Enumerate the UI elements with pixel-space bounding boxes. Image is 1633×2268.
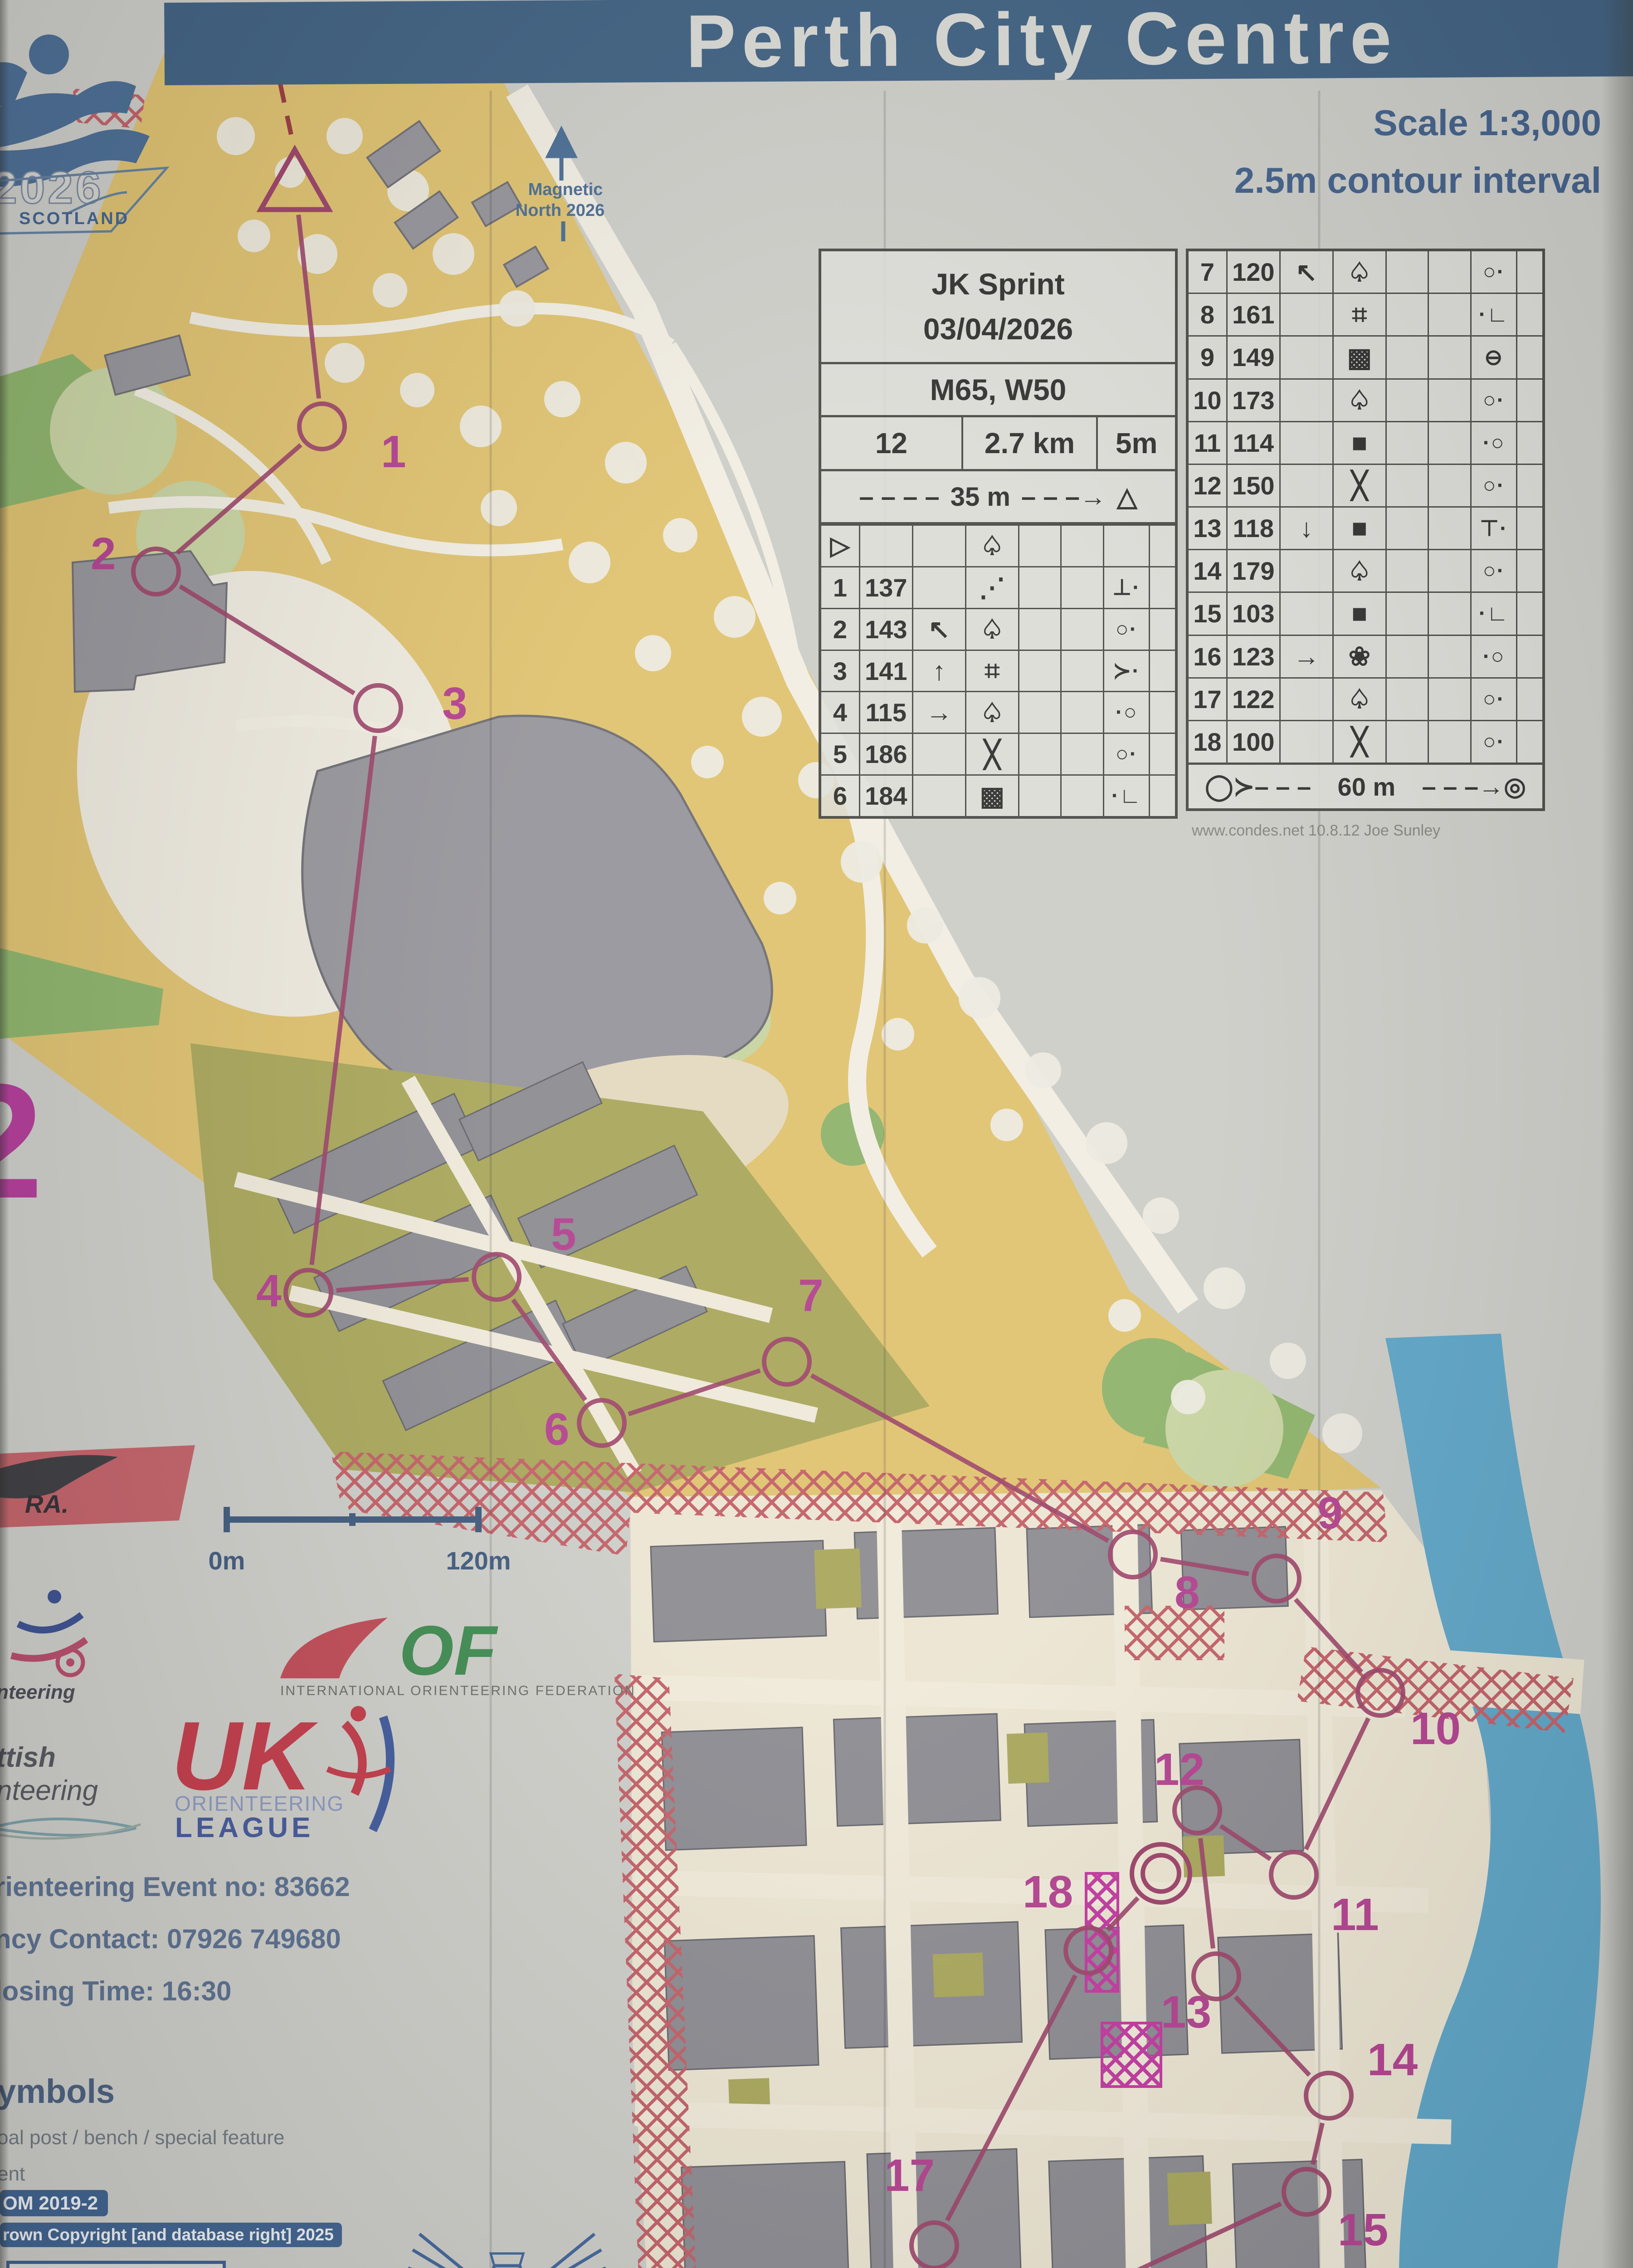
crest-left-wing: [406, 2234, 481, 2268]
iof-letters: OF: [399, 1611, 499, 1690]
jk-year: 2026: [0, 162, 103, 213]
detail-cell: [1019, 691, 1062, 733]
tree-icon: ♤: [1334, 549, 1387, 591]
thicket-icon: ▩: [1334, 335, 1387, 378]
detail-cell: [1429, 635, 1472, 677]
detail-cell: [1150, 650, 1175, 691]
detail-cell: [1429, 421, 1472, 464]
tree-icon: ♤: [966, 691, 1019, 733]
direction-icon: [913, 524, 966, 566]
control-number-label-9: 9: [1317, 1488, 1343, 1539]
crossing-icon: ╳: [966, 733, 1019, 774]
title-banner: Perth City Centre: [164, 0, 1633, 85]
direction-icon: →: [913, 691, 966, 733]
detail-cell: [1150, 566, 1175, 608]
control-code: 103: [1228, 591, 1281, 634]
control-number-label-8: 8: [1175, 1567, 1200, 1618]
detail-cell: [1062, 774, 1104, 816]
control-number-label-10: 10: [1410, 1703, 1461, 1754]
detail-cell: [1150, 774, 1175, 816]
control-number: 12: [1189, 464, 1228, 506]
control-row-13: 13118↓■⊤·: [1189, 506, 1542, 549]
building-icon: ■: [1334, 591, 1387, 634]
detail-cell: [1019, 733, 1062, 774]
control-number: 4: [821, 691, 860, 733]
control-number-label-5: 5: [551, 1209, 576, 1260]
detail-cell: [1429, 677, 1472, 720]
detail-cell: [1387, 549, 1429, 591]
special-item-icon: ❀: [1334, 635, 1387, 677]
location-icon: ·∟: [1472, 591, 1517, 634]
control-code: 186: [860, 733, 913, 774]
detail-cell: [1387, 335, 1429, 378]
location-icon: ○·: [1472, 464, 1517, 506]
detail-cell: [1429, 506, 1472, 549]
detail-cell: [1387, 506, 1429, 549]
detail-cell: [1517, 378, 1542, 421]
thicket-icon: ▩: [966, 774, 1019, 816]
control-number: 2: [821, 608, 860, 650]
control-number: ▷: [821, 524, 860, 566]
event-number-line: rienteering Event no: 83662: [0, 1871, 350, 1902]
detail-cell: [1429, 378, 1472, 421]
scottish-orienteering-logo: ttish nteering: [0, 1742, 141, 1838]
detail-cell: [1429, 464, 1472, 506]
card-course-length: 2.7 km: [963, 417, 1098, 469]
detail-cell: [1387, 421, 1429, 464]
detail-cell: [1150, 608, 1175, 650]
control-code: 184: [860, 774, 913, 816]
control-code: 114: [1228, 421, 1281, 464]
detail-cell: [1019, 566, 1062, 608]
detail-cell: [1150, 733, 1175, 774]
building-icon: ■: [1334, 506, 1387, 549]
control-code: 179: [1228, 549, 1281, 591]
location-icon: ·○: [1472, 635, 1517, 677]
control-code: 122: [1228, 677, 1281, 720]
card-course-climb: 5m: [1098, 417, 1175, 469]
control-number: 11: [1189, 421, 1228, 464]
north-label-2: North 2026: [516, 201, 604, 220]
control-number-label-17: 17: [884, 2150, 935, 2201]
council-crest: [406, 2234, 608, 2268]
control-number-label-12: 12: [1154, 1744, 1204, 1795]
jk-country: SCOTLAND: [19, 209, 129, 228]
detail-cell: [1387, 293, 1429, 335]
location-icon: ○·: [1104, 733, 1150, 774]
detail-cell: [1429, 335, 1472, 378]
crossing-icon: ╳: [1334, 464, 1387, 506]
detail-cell: [1387, 250, 1429, 293]
control-row-1: 1137⋰⊥·: [821, 566, 1175, 608]
card-stats: 12 2.7 km 5m: [821, 417, 1175, 471]
location-icon: ≻·: [1104, 650, 1150, 691]
control-code: [860, 524, 913, 566]
fence-icon: ⌗: [966, 650, 1019, 691]
direction-icon: [1281, 720, 1334, 763]
licence-info-lines: 118237enteersGovernment Licence v3.0.rap…: [10, 2264, 223, 2268]
detail-cell: [1150, 691, 1175, 733]
control-row-start: ▷♤: [821, 524, 1175, 566]
direction-icon: [1281, 677, 1334, 720]
shoe-logo: RA.: [0, 1445, 195, 1528]
so-line2: nteering: [0, 1775, 98, 1806]
control-number: 7: [1189, 250, 1228, 293]
control-row-5: 5186╳○·: [821, 733, 1175, 774]
detail-cell: [1517, 549, 1542, 591]
control-code: 161: [1228, 293, 1281, 335]
control-number-label-13: 13: [1161, 1987, 1211, 2038]
control-number: 14: [1189, 549, 1228, 591]
ukol-logo: UK ORIENTEERING LEAGUE: [171, 1701, 390, 1843]
control-number-label-2: 2: [91, 528, 116, 579]
detail-cell: [1517, 293, 1542, 335]
location-icon: ·∟: [1472, 293, 1517, 335]
location-icon: ○·: [1104, 608, 1150, 650]
control-number: 15: [1189, 591, 1228, 634]
detail-cell: [1019, 524, 1062, 566]
control-rows-right: 7120↖♤○·8161⌗·∟9149▩⊖10173♤○·11114■·○121…: [1189, 250, 1542, 763]
location-icon: ⊖: [1472, 335, 1517, 378]
direction-icon: [1281, 591, 1334, 634]
control-code: 137: [860, 566, 913, 608]
iof-tagline: INTERNATIONAL ORIENTEERING FEDERATION: [280, 1683, 636, 1698]
control-row-4: 4115→♤·○: [821, 691, 1175, 733]
control-row-12: 12150╳○·: [1189, 464, 1542, 506]
direction-icon: [913, 733, 966, 774]
control-row-8: 8161⌗·∟: [1189, 293, 1542, 335]
photo-edge-right: [1601, 0, 1633, 2268]
control-number: 13: [1189, 506, 1228, 549]
control-code: 118: [1228, 506, 1281, 549]
detail-cell: [1387, 591, 1429, 634]
detail-cell: [1517, 591, 1542, 634]
direction-icon: ↖: [913, 608, 966, 650]
detail-cell: [1019, 650, 1062, 691]
control-row-18: 18100╳○·: [1189, 720, 1542, 763]
control-number: 16: [1189, 635, 1228, 677]
direction-icon: [1281, 293, 1334, 335]
direction-icon: [1281, 464, 1334, 506]
card-finish-distance: ◯≻– – – 60 m – – –→◎: [1189, 763, 1542, 808]
location-icon: ·○: [1104, 691, 1150, 733]
map-sheet: 123456789101112131415161718 Magnetic Nor…: [0, 0, 1633, 2268]
steps-icon: ⋰: [966, 566, 1019, 608]
shoe-logo-text: RA.: [25, 1490, 68, 1518]
direction-icon: [913, 774, 966, 816]
detail-cell: [1387, 378, 1429, 421]
control-card-right: 7120↖♤○·8161⌗·∟9149▩⊖10173♤○·11114■·○121…: [1186, 249, 1545, 811]
map-title: Perth City Centre: [164, 0, 1633, 86]
emergency-contact-line: ncy Contact: 07926 749680: [0, 1923, 341, 1955]
detail-cell: [1387, 677, 1429, 720]
ukol-line2: LEAGUE: [175, 1812, 314, 1843]
control-number: 9: [1189, 335, 1228, 378]
detail-cell: [1019, 774, 1062, 816]
detail-cell: [1517, 720, 1542, 763]
symbols-line-1: oal post / bench / special feature: [0, 2126, 285, 2149]
detail-cell: [1517, 677, 1542, 720]
control-code: 173: [1228, 378, 1281, 421]
detail-cell: [1062, 691, 1104, 733]
detail-cell: [1062, 733, 1104, 774]
location-icon: [1104, 524, 1150, 566]
licence-info-box: 118237enteersGovernment Licence v3.0.rap…: [6, 2261, 226, 2268]
control-number-label-18: 18: [1023, 1867, 1073, 1917]
card-classes: M65, W50: [821, 364, 1175, 417]
scale-bar-start: 0m: [209, 1546, 245, 1575]
tree-icon: ♤: [966, 608, 1019, 650]
control-row-7: 7120↖♤○·: [1189, 250, 1542, 293]
closing-time-line: losing Time: 16:30: [0, 1975, 231, 2007]
control-row-11: 11114■·○: [1189, 421, 1542, 464]
detail-cell: [1150, 524, 1175, 566]
condes-attribution: www.condes.net 10.8.12 Joe Sunley: [1192, 822, 1440, 840]
direction-icon: →: [1281, 635, 1334, 677]
direction-icon: [1281, 335, 1334, 378]
crest-right-wing: [533, 2234, 608, 2268]
control-row-16: 16123→❀·○: [1189, 635, 1542, 677]
location-icon: ⊤·: [1472, 506, 1517, 549]
detail-cell: [1387, 464, 1429, 506]
control-row-2: 2143↖♤○·: [821, 608, 1175, 650]
tree-icon: ♤: [1334, 677, 1387, 720]
control-number-label-11: 11: [1331, 1889, 1379, 1940]
direction-icon: [1281, 378, 1334, 421]
photo-edge-left: [0, 0, 9, 2268]
control-row-17: 17122♤○·: [1189, 677, 1542, 720]
north-label-1: Magnetic: [528, 180, 603, 199]
detail-cell: [1429, 293, 1472, 335]
detail-cell: [1062, 608, 1104, 650]
control-number-label-1: 1: [381, 426, 406, 477]
control-code: 120: [1228, 250, 1281, 293]
detail-cell: [1517, 506, 1542, 549]
control-code: 115: [860, 691, 913, 733]
location-icon: ○·: [1472, 720, 1517, 763]
detail-cell: [1429, 720, 1472, 763]
detail-cell: [1062, 650, 1104, 691]
bo-logo-text: nteering: [0, 1681, 75, 1703]
direction-icon: [913, 566, 966, 608]
detail-cell: [1019, 608, 1062, 650]
isom-badge: OM 2019-2: [0, 2190, 108, 2216]
control-row-10: 10173♤○·: [1189, 378, 1542, 421]
crossing-icon: ╳: [1334, 720, 1387, 763]
control-number: 6: [821, 774, 860, 816]
detail-cell: [1517, 335, 1542, 378]
direction-icon: ↓: [1281, 506, 1334, 549]
tree-icon: ♤: [1334, 250, 1387, 293]
building-icon: ■: [1334, 421, 1387, 464]
control-code: 123: [1228, 635, 1281, 677]
control-number-label-6: 6: [544, 1404, 570, 1455]
detail-cell: [1429, 591, 1472, 634]
control-number-label-14: 14: [1367, 2034, 1418, 2085]
control-row-14: 14179♤○·: [1189, 549, 1542, 591]
control-number: 3: [821, 650, 860, 691]
detail-cell: [1062, 566, 1104, 608]
control-code: 150: [1228, 464, 1281, 506]
control-code: 141: [860, 650, 913, 691]
location-icon: ⊥·: [1104, 566, 1150, 608]
detail-cell: [1387, 635, 1429, 677]
control-row-15: 15103■·∟: [1189, 591, 1542, 634]
location-icon: ○·: [1472, 677, 1517, 720]
location-icon: ·∟: [1104, 774, 1150, 816]
direction-icon: ↖: [1281, 250, 1334, 293]
scale-bar-end: 120m: [446, 1546, 511, 1575]
card-event-title: JK Sprint03/04/2026: [821, 251, 1175, 364]
control-row-3: 3141↑⌗≻·: [821, 650, 1175, 691]
control-rows-left: ▷♤1137⋰⊥·2143↖♤○·3141↑⌗≻·4115→♤·○5186╳○·…: [821, 524, 1175, 816]
control-code: 100: [1228, 720, 1281, 763]
control-number: 8: [1189, 293, 1228, 335]
control-number-label-4: 4: [256, 1266, 282, 1316]
copyright-badge: rown Copyright [and database right] 2025: [0, 2223, 342, 2247]
control-number-label-7: 7: [798, 1270, 824, 1321]
symbols-heading: ymbols: [0, 2072, 115, 2111]
direction-icon: [1281, 549, 1334, 591]
direction-icon: ↑: [913, 650, 966, 691]
control-card-left: JK Sprint03/04/2026 M65, W50 12 2.7 km 5…: [819, 249, 1178, 819]
control-number: 5: [821, 733, 860, 774]
card-course-number: 12: [821, 417, 963, 469]
control-number: 10: [1189, 378, 1228, 421]
contour-interval: 2.5m contour interval: [1234, 160, 1601, 201]
fence-icon: ⌗: [1334, 293, 1387, 335]
detail-cell: [1062, 524, 1104, 566]
control-number-label-15: 15: [1338, 2204, 1388, 2255]
detail-cell: [1517, 635, 1542, 677]
british-orienteering-logo: nteering: [0, 1590, 86, 1703]
location-icon: ○·: [1472, 549, 1517, 591]
tree-icon: ♤: [966, 524, 1019, 566]
location-icon: ·○: [1472, 421, 1517, 464]
card-start-distance: – – – – 35 m – – –→ △: [821, 471, 1175, 524]
detail-cell: [1517, 421, 1542, 464]
control-number-label-3: 3: [442, 678, 468, 729]
detail-cell: [1429, 250, 1472, 293]
map-scale: Scale 1:3,000: [1373, 102, 1601, 144]
control-code: 149: [1228, 335, 1281, 378]
control-code: 143: [860, 608, 913, 650]
control-row-9: 9149▩⊖: [1189, 335, 1542, 378]
direction-icon: [1281, 421, 1334, 464]
tree-icon: ♤: [1334, 378, 1387, 421]
detail-cell: [1517, 464, 1542, 506]
location-icon: ○·: [1472, 378, 1517, 421]
control-number: 1: [821, 566, 860, 608]
detail-cell: [1517, 250, 1542, 293]
iof-logo: OF INTERNATIONAL ORIENTEERING FEDERATION: [280, 1611, 636, 1698]
control-number: 18: [1189, 720, 1228, 763]
control-row-6: 6184▩·∟: [821, 774, 1175, 816]
location-icon: ○·: [1472, 250, 1517, 293]
detail-cell: [1429, 549, 1472, 591]
control-number: 17: [1189, 677, 1228, 720]
detail-cell: [1387, 720, 1429, 763]
